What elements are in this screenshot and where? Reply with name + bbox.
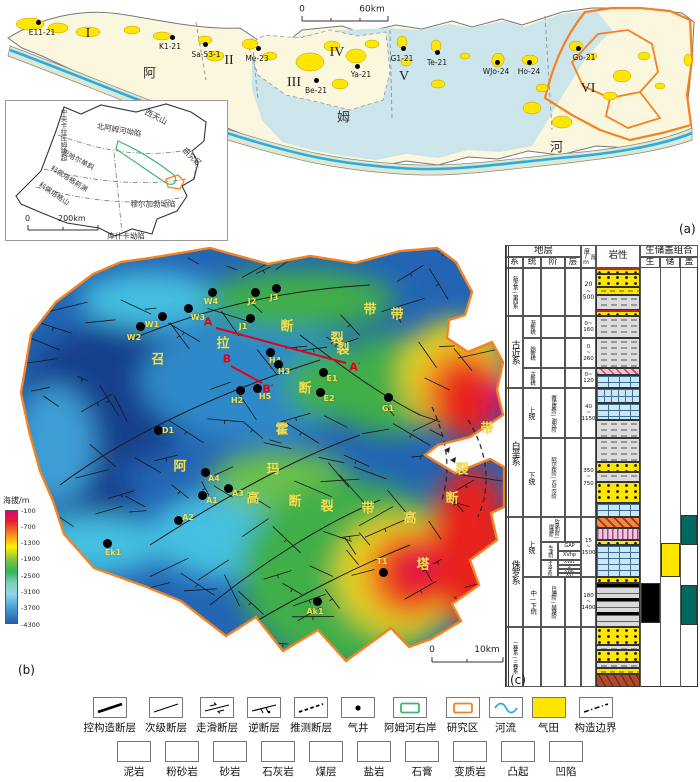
structure-map-overlay: 召拉断裂带带裂断霍阿玛高断裂带高塔带裂断W2W1W3W4J2J3J1H4H3H2… xyxy=(0,245,505,695)
well-label-Go-21: Go-21 xyxy=(573,53,596,62)
well-label-Ya-21: Ya-21 xyxy=(351,70,371,79)
strike-slip-icon xyxy=(202,701,232,715)
well-label-W2: W2 xyxy=(127,333,141,342)
legend-item-structure-boundary: 构造边界 xyxy=(575,697,617,735)
strat-cell: 下统 xyxy=(523,438,541,517)
well-label-E1: E1 xyxy=(326,374,337,383)
fault-zone-char: 断 xyxy=(445,488,458,507)
grid-line xyxy=(640,268,641,687)
legend-item-reverse-fault: 逆断层 xyxy=(247,697,281,735)
inset-location-map: 0 200km 西天山中央卡拉库姆隆起北阿姆河坳陷研究区巴哈尔单斜科佩塔格前渊科… xyxy=(5,100,228,241)
inset-label: 科佩塔格山 xyxy=(37,180,72,208)
strat-cell xyxy=(565,438,581,517)
river-name-char: 姆 xyxy=(337,107,351,126)
well-label-K1-21: K1-21 xyxy=(159,42,181,51)
orange-outline-icon xyxy=(448,701,478,715)
panel-a-label: (a) xyxy=(679,222,696,236)
strat-cell: 岩性 xyxy=(596,245,640,268)
thin-line-icon xyxy=(151,701,181,715)
well-label-G1: G1 xyxy=(382,404,394,413)
lithology-gyph xyxy=(596,368,640,375)
gas-well-dot-W3 xyxy=(184,304,193,313)
legend-item-gas-well: 气井 xyxy=(341,697,375,735)
strat-cell xyxy=(581,627,596,687)
legend-label: 次级断层 xyxy=(145,720,187,735)
inset-labels: 西天山中央卡拉库姆隆起北阿姆河坳陷研究区巴哈尔单斜科佩塔格前渊科佩塔格山穆尔加勃… xyxy=(6,101,227,240)
legend-label: 砂岩 xyxy=(220,764,241,779)
lithology-mud xyxy=(596,420,640,438)
strat-cell xyxy=(523,268,541,316)
orange-outline-symbol-swatch xyxy=(446,697,480,718)
river-symbol-swatch xyxy=(489,697,523,718)
lithology-coal xyxy=(596,583,640,627)
strat-cell: 350 ~ 750 xyxy=(581,438,596,517)
lithology-mud xyxy=(596,316,640,338)
well-label-Ak1: Ak1 xyxy=(306,607,323,616)
salt-pattern-swatch xyxy=(357,741,391,762)
strat-cell: 层 xyxy=(565,257,581,268)
legend-item-silt: 粉砂岩 xyxy=(165,741,199,779)
strat-cell xyxy=(565,316,581,338)
well-label-J1: J1 xyxy=(239,322,248,331)
gas-well-dot-J2 xyxy=(251,288,260,297)
legend-item-thick-line: 控构造断层 xyxy=(84,697,137,735)
legend-item-inferred-fault: 推测断层 xyxy=(290,697,332,735)
zone-label-VI: VI xyxy=(581,81,596,97)
gas-well-dot-W4 xyxy=(208,288,217,297)
well-label-A3: A3 xyxy=(232,489,244,498)
dep-pattern-swatch xyxy=(549,741,583,762)
lithology-mud xyxy=(596,438,640,462)
well-label-Ek1: Ek1 xyxy=(105,548,121,557)
gas-well-dot-WJo-24 xyxy=(495,60,500,65)
legend-label: 气井 xyxy=(348,720,369,735)
strat-cell: 生储盖组合 xyxy=(640,245,698,257)
legend-label: 变质岩 xyxy=(454,764,486,779)
legend-label: 盐岩 xyxy=(364,764,385,779)
section-label-A′: A′ xyxy=(349,361,360,374)
strat-cell: 阶 xyxy=(541,257,565,268)
strat-cell: 巴通阶—赫塘阶 xyxy=(541,577,565,627)
meta-pattern-swatch xyxy=(453,741,487,762)
strike-slip-symbol-swatch xyxy=(200,697,234,718)
legend-item-meta: 变质岩 xyxy=(453,741,487,779)
gas-field-symbol-swatch xyxy=(532,697,566,718)
gas-well-dot-Te-21 xyxy=(435,50,440,55)
legend-label: 阿姆河右岸 xyxy=(384,720,437,735)
inset-label: 穆尔加勃坳陷 xyxy=(131,199,176,210)
strat-cell: 厚度/m xyxy=(581,245,596,268)
legend-row-1: 控构造断层次级断层走滑断层逆断层推测断层气井阿姆河右岸研究区河流气田构造边界 xyxy=(0,697,700,735)
inset-label: 西天山 xyxy=(143,107,169,128)
legend-item-sand: 砂岩 xyxy=(213,741,247,779)
lithology-sand xyxy=(596,650,640,662)
well-label-Sa-53-1: Sa-53-1 xyxy=(191,50,220,59)
strat-cell xyxy=(565,517,581,542)
strat-cell: 古近系 xyxy=(506,316,523,388)
gas-well-dot-J3 xyxy=(272,284,281,293)
lithology-sand xyxy=(596,274,640,287)
fault-zone-char: 断 xyxy=(280,316,293,335)
gas-well-dot-Be-21 xyxy=(314,78,319,83)
fault-zone-char: 带 xyxy=(480,418,493,437)
legend-label: 石灰岩 xyxy=(262,764,294,779)
gas-well-icon xyxy=(343,701,373,715)
gas-well-dot-Go-21 xyxy=(576,46,581,51)
section-label-B′: B′ xyxy=(262,383,273,396)
strat-cell: 牛津阶 xyxy=(541,542,558,560)
legend-item-strike-slip: 走滑断层 xyxy=(196,697,238,735)
fault-zone-char: 高 xyxy=(403,508,416,527)
gas-well-dot-Ho-24 xyxy=(527,60,532,65)
well-label-A1: A1 xyxy=(206,496,218,505)
lithology-silt xyxy=(596,287,640,295)
strat-cell: 20 ~ 500 xyxy=(581,268,596,316)
gas-well-dot-E11-21 xyxy=(36,20,41,25)
fault-zone-char: 裂 xyxy=(320,496,333,515)
strat-cell xyxy=(541,268,565,316)
strat-cell: 180 ~ 1400 xyxy=(581,577,596,627)
well-label-A4: A4 xyxy=(208,474,220,483)
combo-block xyxy=(681,515,697,545)
strat-cell xyxy=(565,268,581,316)
fault-zone-char: 断 xyxy=(288,491,301,510)
strat-cell: 地层 xyxy=(506,245,581,257)
section-label-B: B xyxy=(223,353,231,366)
legend-label: 气田 xyxy=(538,720,559,735)
well-label-Me-23: Me-23 xyxy=(245,54,268,63)
legend-label: 泥岩 xyxy=(124,764,145,779)
well-label-WJo-24: WJo-24 xyxy=(483,67,510,76)
inset-label: 北阿姆河坳陷 xyxy=(96,121,142,140)
gas-well-dot-G1-21 xyxy=(401,46,406,51)
well-label-Be-21: Be-21 xyxy=(305,86,327,95)
legend-item-salt: 盐岩 xyxy=(357,741,391,779)
combo-block xyxy=(641,583,660,623)
well-label-T1: T1 xyxy=(376,557,387,566)
legend-label: 逆断层 xyxy=(248,720,280,735)
gas-well-dot-Ek1 xyxy=(103,539,112,548)
strat-cell: 渐新统 xyxy=(523,316,541,338)
fault-zone-char: 拉 xyxy=(216,333,229,352)
strat-cell: 0~ 120 xyxy=(581,368,596,388)
strat-cell: 系 xyxy=(506,257,523,268)
inset-label: 研究区 xyxy=(180,145,204,168)
section-label-A: A xyxy=(204,316,213,329)
legend-label: 煤层 xyxy=(316,764,337,779)
strat-cell: XVhp xyxy=(558,551,581,560)
scalebar-b-end: 10km xyxy=(474,645,499,655)
thick-line-icon xyxy=(95,701,125,715)
strat-cell: 侏罗系 xyxy=(506,517,523,627)
well-label-J3: J3 xyxy=(270,293,279,302)
legend-label: 凹陷 xyxy=(556,764,577,779)
legend-item-gyp: 石膏 xyxy=(405,741,439,779)
strat-cell xyxy=(565,627,581,687)
zone-label-II: II xyxy=(224,53,233,69)
well-label-W1: W1 xyxy=(145,320,159,329)
gas-well-symbol-swatch xyxy=(341,697,375,718)
zone-label-IV: IV xyxy=(330,45,345,61)
legend-row-2: 泥岩粉砂岩砂岩石灰岩煤层盐岩石膏变质岩凸起凹陷 xyxy=(0,741,700,779)
green-outline-icon xyxy=(395,701,425,715)
lithology-mud xyxy=(596,295,640,310)
lithology-sand xyxy=(596,482,640,503)
well-label-A2: A2 xyxy=(182,513,194,522)
reverse-fault-icon xyxy=(249,701,279,715)
well-label-E2: E2 xyxy=(323,394,334,403)
fault-zone-char: 带 xyxy=(390,304,403,323)
legend-item-mud: 泥岩 xyxy=(117,741,151,779)
strat-cell xyxy=(565,388,581,438)
gas-well-dot-Ya-21 xyxy=(355,64,360,69)
well-label-G1-21: G1-21 xyxy=(391,54,414,63)
zone-label-I: I xyxy=(86,26,91,42)
strat-cell: 白垩系 xyxy=(506,388,523,517)
green-outline-symbol-swatch xyxy=(393,697,427,718)
well-label-J2: J2 xyxy=(248,297,257,306)
strat-cell: 盖 xyxy=(680,257,698,268)
strat-cell xyxy=(565,577,581,627)
legend-item-dep: 凹陷 xyxy=(549,741,583,779)
mud-pattern-swatch xyxy=(117,741,151,762)
gas-well-dot-W2 xyxy=(136,322,145,331)
strat-cell: 中—下统 xyxy=(523,577,541,627)
legend: 控构造断层次级断层走滑断层逆断层推测断层气井阿姆河右岸研究区河流气田构造边界 泥… xyxy=(0,697,700,779)
lithology-salt xyxy=(596,517,640,528)
fault-zone-char: 裂 xyxy=(455,459,468,478)
well-label-E11-21: E11-21 xyxy=(29,28,56,37)
sand-pattern-swatch xyxy=(213,741,247,762)
lithology-lime xyxy=(596,545,640,577)
strat-cell: 卡洛夫阶 xyxy=(541,560,558,577)
strat-cell: 上统 xyxy=(523,517,541,577)
legend-item-thin-line: 次级断层 xyxy=(145,697,187,735)
strat-cell xyxy=(565,368,581,388)
strat-cell: 始新统 xyxy=(523,338,541,368)
silt-pattern-swatch xyxy=(165,741,199,762)
legend-label: 构造边界 xyxy=(575,720,617,735)
gas-well-dot-Sa-53-1 xyxy=(203,42,208,47)
strat-cell: 储 xyxy=(660,257,680,268)
legend-label: 河流 xyxy=(495,720,516,735)
well-label-W4: W4 xyxy=(204,297,218,306)
zone-label-V: V xyxy=(399,69,409,85)
thin-line-symbol-swatch xyxy=(149,697,183,718)
river-name-char: 河 xyxy=(550,137,564,156)
strat-cell: 阿尔布阶—瓦兰今阶 xyxy=(541,438,565,517)
strat-cell xyxy=(565,338,581,368)
strat-cell: 新近系—第四系 xyxy=(506,268,523,316)
fault-zone-char: 高 xyxy=(246,488,259,507)
legend-item-upl: 凸起 xyxy=(501,741,535,779)
fault-zone-char: 玛 xyxy=(266,459,279,478)
legend-item-coal: 煤层 xyxy=(309,741,343,779)
gas-well-dot-Me-23 xyxy=(256,46,261,51)
fault-zone-char: 阿 xyxy=(173,456,186,475)
strat-cell xyxy=(541,316,565,338)
structure-map-panel: 海拔/m -100-700-1300-1900-2500-3100-3700-4… xyxy=(0,245,505,695)
lithology-meta xyxy=(596,674,640,687)
combo-block xyxy=(661,543,680,577)
fault-zone-char: 裂 xyxy=(336,339,349,358)
lithology-lime xyxy=(596,403,640,420)
gas-well-dot-Ak1 xyxy=(313,597,322,606)
legend-label: 走滑断层 xyxy=(196,720,238,735)
fault-zone-char: 带 xyxy=(363,299,376,318)
strat-cell: 赛诺曼阶—谢农阶 xyxy=(541,388,565,438)
fault-zone-char: 霍 xyxy=(275,419,288,438)
strat-cell: 统 xyxy=(523,257,541,268)
legend-item-green-outline: 阿姆河右岸 xyxy=(384,697,437,735)
gas-well-dot-H2 xyxy=(236,386,245,395)
fault-zone-char: 断 xyxy=(298,378,311,397)
well-label-Ho-24: Ho-24 xyxy=(518,67,541,76)
legend-item-lime: 石灰岩 xyxy=(261,741,295,779)
scalebar-b-zero: 0 xyxy=(429,645,435,655)
lithology-sand xyxy=(596,627,640,645)
gas-well-dot-K1-21 xyxy=(170,35,175,40)
legend-item-gas-field: 气田 xyxy=(532,697,566,735)
lithology-lime xyxy=(596,503,640,517)
inset-label: 库什卡坳陷 xyxy=(107,231,145,242)
legend-label: 推测断层 xyxy=(290,720,332,735)
strat-cell: GAP xyxy=(558,542,581,551)
panel-b-label: (b) xyxy=(18,663,35,677)
lithology-gyp xyxy=(596,528,640,540)
inferred-fault-icon xyxy=(296,701,326,715)
fault-zone-char: 带 xyxy=(361,498,374,517)
strat-cell xyxy=(541,627,565,687)
panel-c-label: (c) xyxy=(510,673,526,687)
well-label-H3: H3 xyxy=(278,367,290,376)
strat-cell: 生 xyxy=(640,257,660,268)
lithology-marl xyxy=(596,388,640,403)
strat-cell: 0~ 160 xyxy=(581,316,596,338)
inferred-fault-symbol-swatch xyxy=(294,697,328,718)
fault-zone-char: 塔 xyxy=(416,554,429,573)
strat-cell: 钦莫利阶—提塘阶 xyxy=(541,517,565,542)
grid-line xyxy=(680,268,681,687)
lithology-mud xyxy=(596,338,640,368)
strat-cell xyxy=(541,338,565,368)
strat-cell: 40 ~ 1150 xyxy=(581,388,596,438)
legend-label: 研究区 xyxy=(447,720,479,735)
thick-line-symbol-swatch xyxy=(93,697,127,718)
combo-block xyxy=(681,585,697,625)
strat-cell xyxy=(541,368,565,388)
lithology-mud xyxy=(596,472,640,482)
reverse-fault-symbol-swatch xyxy=(247,697,281,718)
structure-boundary-symbol-swatch xyxy=(579,697,613,718)
lithology-lime xyxy=(596,375,640,388)
strat-cell: 0 ~ 260 xyxy=(581,338,596,368)
legend-label: 粉砂岩 xyxy=(166,764,198,779)
legend-item-river: 河流 xyxy=(489,697,523,735)
legend-label: 凸起 xyxy=(508,764,529,779)
gas-well-dot-G1 xyxy=(384,393,393,402)
well-label-H2: H2 xyxy=(231,396,243,405)
gyp-pattern-swatch xyxy=(405,741,439,762)
lithology-sand xyxy=(596,462,640,472)
legend-item-orange-outline: 研究区 xyxy=(446,697,480,735)
lime-pattern-swatch xyxy=(261,741,295,762)
river-icon xyxy=(491,701,521,715)
gas-well-dot-T1 xyxy=(379,568,388,577)
well-label-D1: D1 xyxy=(162,426,174,435)
well-label-Te-21: Te-21 xyxy=(427,58,447,67)
river-name-char: 阿 xyxy=(143,63,157,82)
strat-cell: 上统 xyxy=(523,388,541,438)
fault-zone-char: 召 xyxy=(151,349,164,368)
coal-pattern-swatch xyxy=(309,741,343,762)
upl-pattern-swatch xyxy=(501,741,535,762)
grid-line xyxy=(660,268,661,687)
strat-cell: 古新统 xyxy=(523,368,541,388)
legend-label: 石膏 xyxy=(412,764,433,779)
zone-label-III: III xyxy=(287,75,301,91)
geological-figure: 0 60km IIIIIIIVVVI阿姆河E11-21K1-21Sa-53-1M… xyxy=(0,0,700,782)
strat-cell: 15 ~ 1500 xyxy=(581,517,596,577)
structure-boundary-icon xyxy=(581,701,611,715)
legend-label: 控构造断层 xyxy=(84,720,137,735)
